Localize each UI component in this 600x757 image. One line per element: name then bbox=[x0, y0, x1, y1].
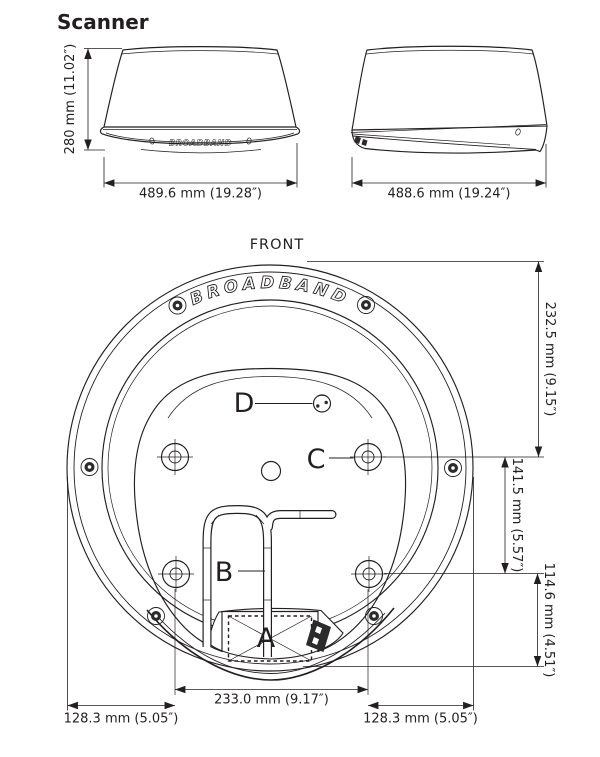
bolt-hole bbox=[158, 556, 194, 592]
center-hole bbox=[262, 462, 281, 481]
side-indicator-oval bbox=[515, 128, 521, 136]
side-view-drawing: 488.6 mm (19.24″) bbox=[351, 46, 547, 201]
base-right-oval bbox=[246, 138, 251, 145]
dim-bolt-vertical-label: 141.5 mm (5.57″) bbox=[509, 458, 524, 573]
side-vent-mark-1 bbox=[354, 136, 361, 144]
callout-a-label: A bbox=[257, 623, 276, 654]
bolt-hole bbox=[350, 439, 386, 475]
base-right-lip bbox=[296, 127, 300, 134]
dim-front-width: 489.6 mm (19.28″) bbox=[104, 143, 297, 202]
bolt-hole bbox=[351, 556, 387, 592]
power-connector bbox=[314, 395, 331, 412]
front-brand-label: BROADBAND bbox=[169, 139, 232, 148]
callout-c-label: C bbox=[307, 444, 326, 475]
bottom-view-drawing: BROADBAND A B bbox=[64, 262, 557, 727]
dim-front-width-label: 489.6 mm (19.28″) bbox=[139, 187, 262, 202]
dim-bolt-width-label: 233.0 mm (9.17″) bbox=[214, 693, 329, 708]
dim-right-offset-label: 128.3 mm (5.05″) bbox=[363, 712, 478, 727]
rim-screw bbox=[445, 460, 462, 477]
page-title: Scanner bbox=[57, 10, 149, 34]
dim-height-label: 280 mm (11.02″) bbox=[63, 44, 78, 155]
side-bottom-edge bbox=[352, 130, 536, 153]
front-view-drawing: BROADBAND 280 mm (11.02″) 489.6 mm (19.2… bbox=[63, 44, 300, 202]
dim-right-column: 232.5 mm (9.15″) 141.5 mm (5.57″) 114.6 … bbox=[303, 262, 557, 678]
callout-d-label: D bbox=[234, 388, 255, 419]
mounting-plate-inner-edge bbox=[168, 377, 372, 419]
radome-front-top-edge bbox=[122, 51, 278, 54]
side-base-swoosh bbox=[353, 136, 536, 150]
dim-top-to-bolts-label: 232.5 mm (9.15″) bbox=[542, 302, 557, 417]
ring-brand-label: BROADBAND bbox=[187, 273, 353, 309]
side-base-joint bbox=[351, 125, 546, 133]
dim-bolts-to-bottom-label: 114.6 mm (4.51″) bbox=[541, 563, 556, 678]
callout-b-label: B bbox=[215, 557, 234, 588]
rim-screw bbox=[81, 459, 98, 476]
radome-side-top-edge bbox=[366, 50, 533, 54]
scanner-dimensions-figure: Scanner BROADBAND 280 mm (11.02″) 489.6 … bbox=[0, 0, 600, 757]
rim-screw bbox=[169, 297, 186, 314]
bolt-hole bbox=[157, 439, 193, 475]
side-right-edge bbox=[536, 126, 547, 152]
dim-height: 280 mm (11.02″) bbox=[63, 44, 122, 155]
rim-screw bbox=[148, 608, 165, 625]
side-vent-mark-2 bbox=[362, 139, 368, 146]
radome-front-outline bbox=[104, 47, 296, 127]
rim-screw bbox=[358, 297, 375, 314]
base-under-shadow bbox=[141, 150, 261, 153]
front-orientation-label: FRONT bbox=[250, 237, 305, 253]
dim-side-width-label: 488.6 mm (19.24″) bbox=[387, 187, 510, 202]
side-base-swoosh2 bbox=[353, 134, 510, 145]
dimension-drawing-svg: Scanner BROADBAND 280 mm (11.02″) 489.6 … bbox=[0, 0, 600, 757]
base-left-lip bbox=[100, 127, 104, 134]
radome-side-outline bbox=[352, 46, 547, 130]
base-left-oval bbox=[149, 138, 154, 145]
dim-left-offset-label: 128.3 mm (5.05″) bbox=[64, 712, 179, 727]
